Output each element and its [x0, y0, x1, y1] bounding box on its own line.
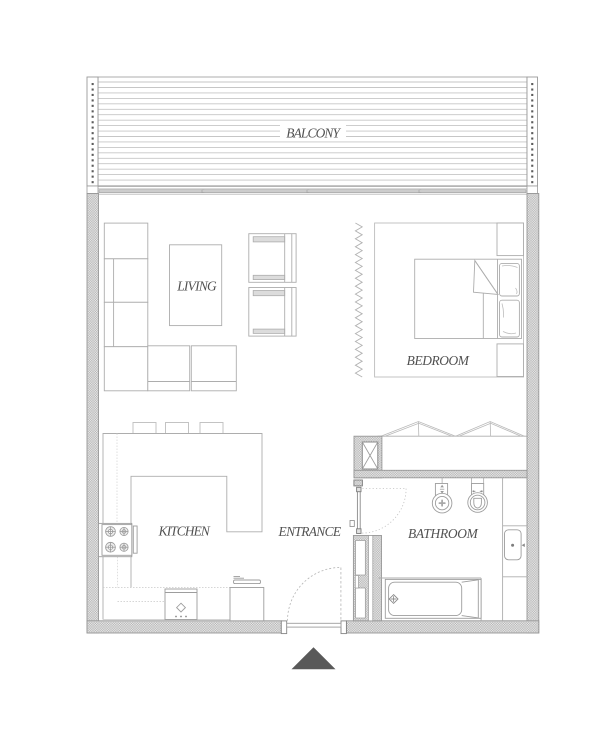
svg-text:BALCONY: BALCONY — [286, 126, 341, 141]
svg-text:BATHROOM: BATHROOM — [408, 526, 479, 541]
svg-text:KITCHEN: KITCHEN — [158, 523, 211, 538]
svg-text:LIVING: LIVING — [176, 279, 217, 294]
svg-text:BEDROOM: BEDROOM — [407, 353, 470, 368]
svg-text:ENTRANCE: ENTRANCE — [278, 524, 341, 539]
